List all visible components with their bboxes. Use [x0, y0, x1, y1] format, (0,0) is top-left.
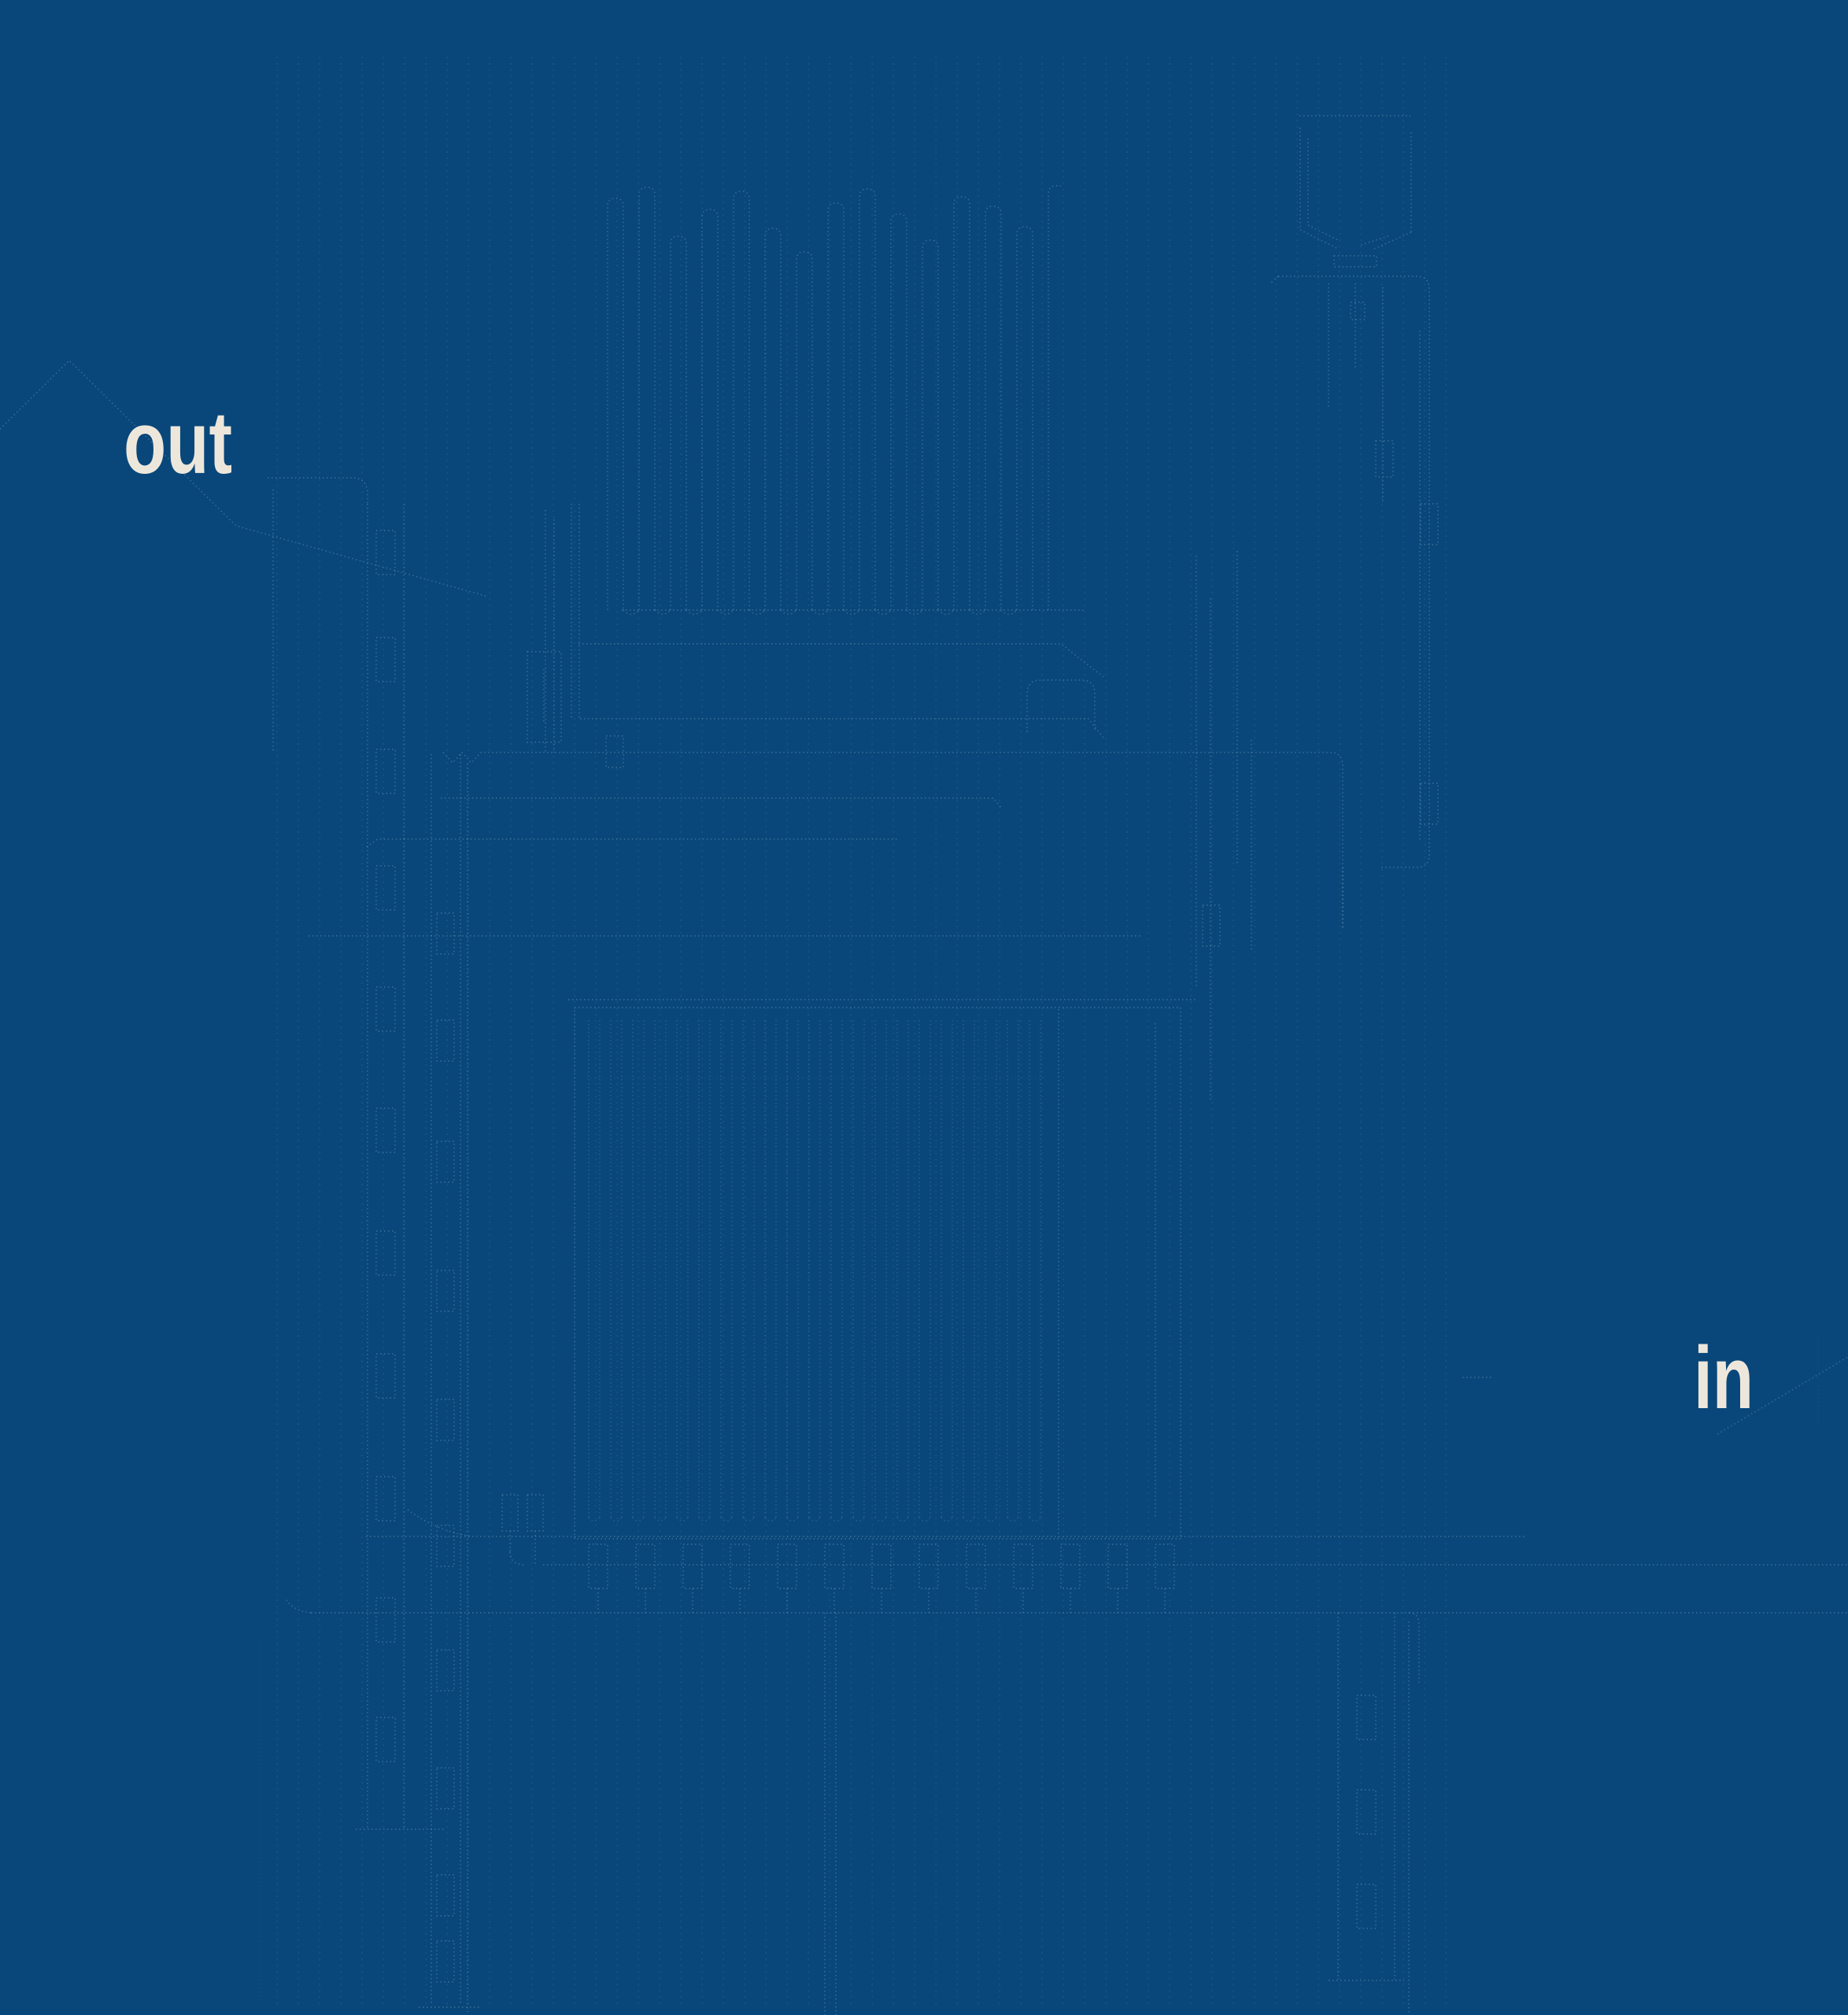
circuit-art: out in — [0, 0, 1848, 2015]
in-label: in — [1694, 1329, 1754, 1427]
in-diagonal-line — [1462, 1338, 1848, 1434]
blueprint-poster: out in — [0, 0, 1848, 2015]
out-label: out — [124, 394, 232, 492]
dot-grid — [260, 55, 1456, 2007]
